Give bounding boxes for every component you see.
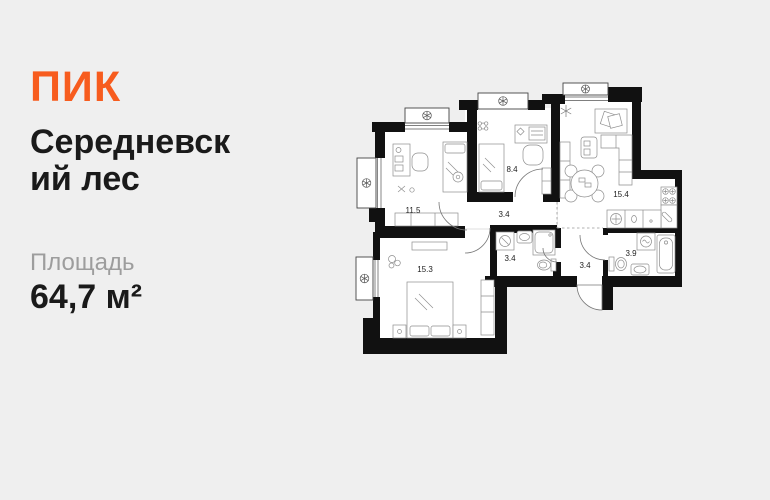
- room-area-label: 3.4: [579, 261, 591, 270]
- area-value: 64,7 м²: [30, 278, 142, 317]
- room-area-label: 3.4: [498, 210, 510, 219]
- project-title-line1: Середневск: [30, 124, 230, 161]
- room-area-label: 3.9: [625, 249, 637, 258]
- room-area-label: 8.4: [506, 165, 518, 174]
- room-area-label: 3.4: [504, 254, 516, 263]
- area-label: Площадь: [30, 249, 134, 277]
- pik-logo: ПИК: [30, 66, 121, 109]
- room-area-label: 15.3: [417, 265, 433, 274]
- room-area-label: 11.5: [406, 206, 422, 215]
- room-area-label: 15.4: [613, 190, 629, 199]
- project-title: Середневск ий лес: [30, 124, 230, 198]
- floor-plan: 11.5 8.4 15.4 3.4 3.4 3.4 3.9 15.3: [355, 80, 735, 360]
- listing-card: ПИК Середневск ий лес Площадь 64,7 м²: [0, 0, 770, 500]
- project-title-line2: ий лес: [30, 161, 230, 198]
- door-entrance: [577, 285, 602, 310]
